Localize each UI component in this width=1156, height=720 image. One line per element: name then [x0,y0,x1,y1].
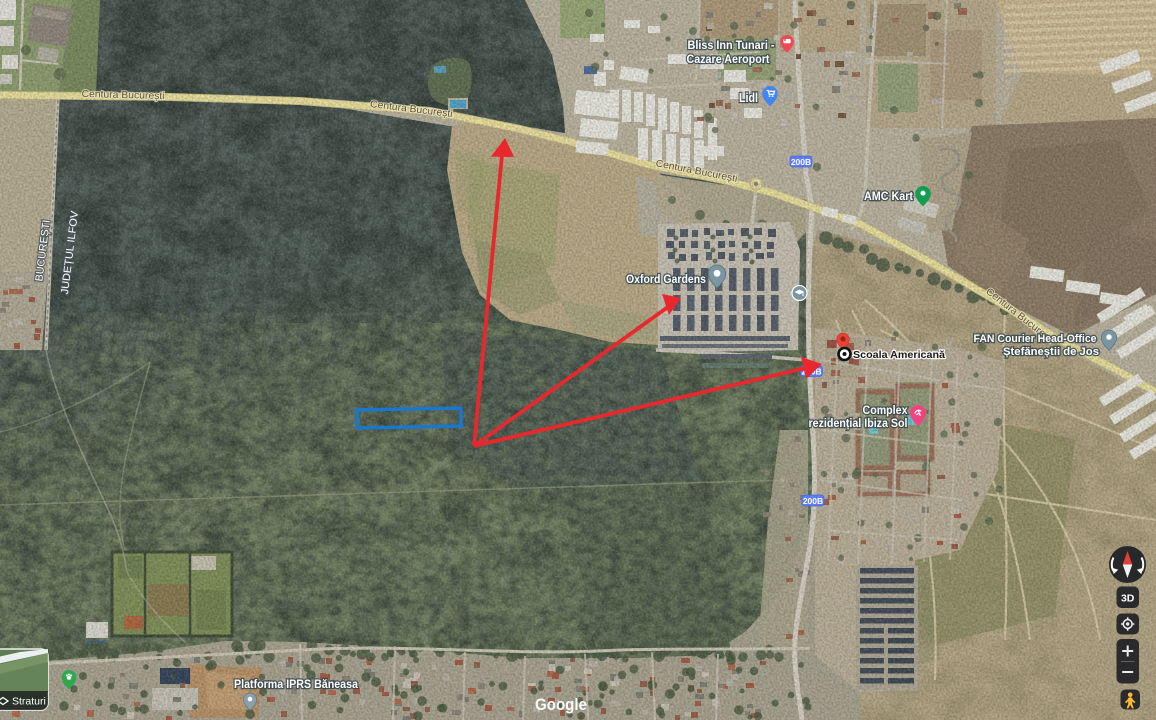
svg-text:Lidl: Lidl [739,91,758,105]
svg-text:3D: 3D [1121,593,1135,605]
svg-text:200B: 200B [791,157,811,167]
svg-text:Oxford Gardens: Oxford Gardens [626,272,706,286]
svg-text:Cazare Aeroport: Cazare Aeroport [687,54,770,66]
svg-text:Platforma IPRS Băneasa: Platforma IPRS Băneasa [234,679,359,691]
svg-text:Straturi: Straturi [12,696,46,708]
svg-text:FAN Courier Head-Office: FAN Courier Head-Office [974,333,1097,345]
svg-text:200B: 200B [803,496,823,506]
svg-text:Ștefăneștii de Jos: Ștefăneștii de Jos [1003,346,1099,358]
svg-text:Complex: Complex [863,405,909,417]
svg-text:Bliss Inn Tunari -: Bliss Inn Tunari - [688,40,775,52]
svg-text:Google: Google [535,696,587,714]
svg-text:rezidențial Ibiza Sol: rezidențial Ibiza Sol [809,418,908,430]
svg-text:AMC Kart: AMC Kart [864,189,913,203]
svg-text:Centura București: Centura București [81,89,164,102]
svg-text:Scoala Americană: Scoala Americană [853,349,945,361]
